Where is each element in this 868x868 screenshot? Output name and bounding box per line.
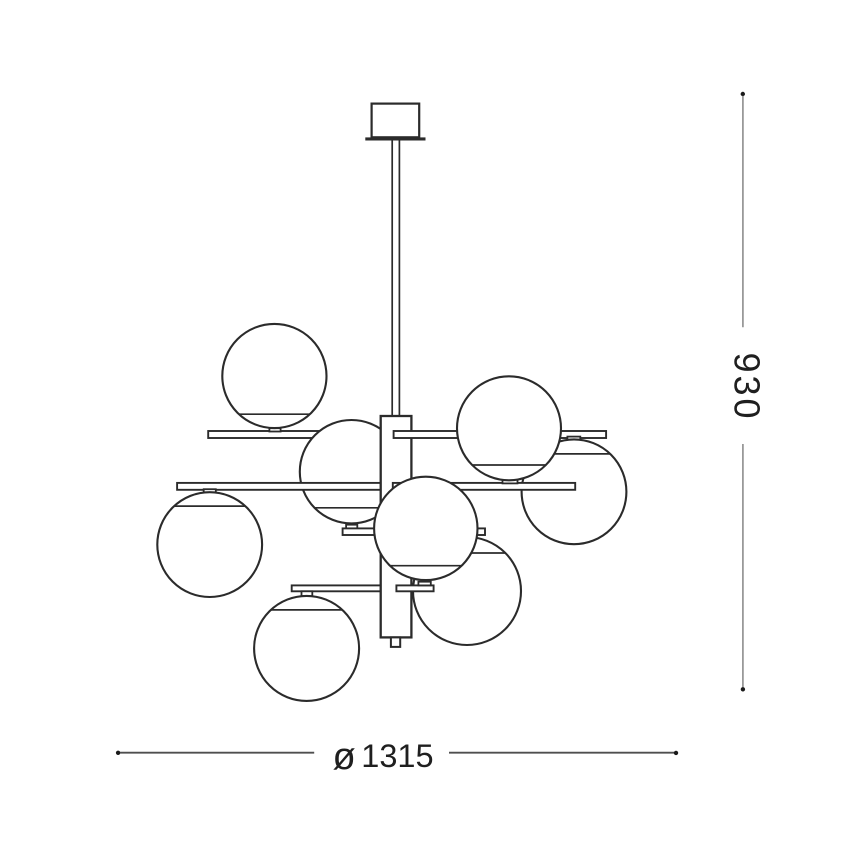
svg-text:ø 1315: ø 1315 [333, 736, 434, 778]
svg-text:930: 930 [727, 352, 768, 421]
